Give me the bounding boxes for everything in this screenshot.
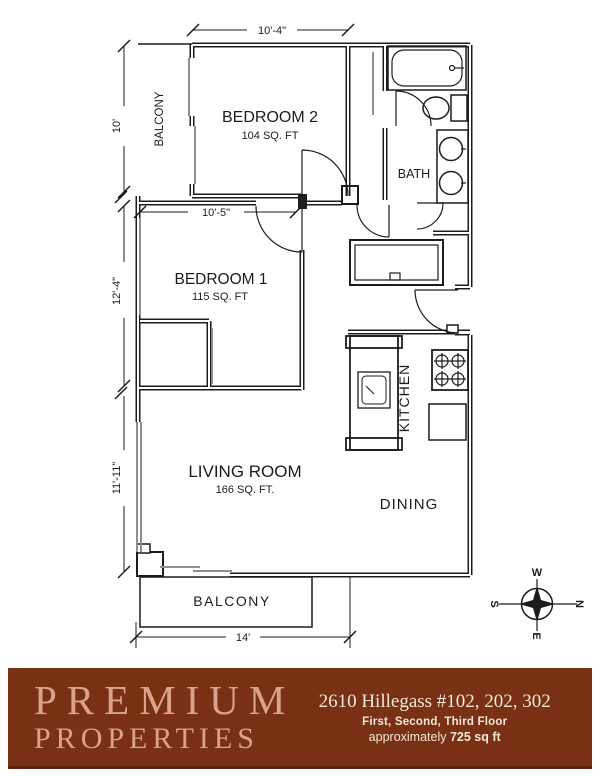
island-cap bbox=[346, 438, 402, 450]
bedroom2-area: 104 SQ. FT bbox=[242, 130, 299, 142]
bathtub bbox=[392, 50, 462, 86]
brand-logo: PREMIUM PROPERTIES bbox=[34, 680, 295, 754]
door-post bbox=[298, 194, 307, 209]
toilet-tank bbox=[451, 95, 467, 121]
listing-area: approximately 725 sq ft bbox=[295, 730, 574, 744]
living-room-label: LIVING ROOM bbox=[188, 462, 301, 481]
tub-faucet-icon bbox=[450, 66, 455, 71]
stove-burners bbox=[434, 353, 466, 387]
dim-bedroom2-width: 10'-4" bbox=[258, 25, 286, 37]
compass-top: W bbox=[532, 567, 543, 579]
brand-line2: PROPERTIES bbox=[34, 724, 295, 754]
dim-bedroom1-height: 12'-4" bbox=[111, 277, 123, 305]
listing-info: 2610 Hillegass #102, 202, 302 First, Sec… bbox=[295, 691, 574, 744]
compass-rose: W N S E bbox=[488, 567, 585, 640]
listing-area-prefix: approximately bbox=[369, 730, 450, 744]
bedroom2-label: BEDROOM 2 bbox=[222, 109, 318, 126]
toilet bbox=[423, 97, 449, 119]
compass-right: N bbox=[573, 600, 585, 608]
kitchen-island bbox=[350, 336, 398, 450]
dim-bottom-width: 14' bbox=[236, 632, 250, 644]
floor-plan-drawing: BEDROOM 2 104 SQ. FT BEDROOM 1 115 SQ. F… bbox=[0, 0, 600, 662]
sink-faucet-icon bbox=[366, 386, 374, 394]
living-room-window bbox=[137, 422, 141, 552]
kitchen-counter bbox=[429, 404, 466, 440]
listing-area-value: 725 sq ft bbox=[450, 730, 501, 744]
hall-door bbox=[357, 205, 389, 237]
dim-living-height: 11'-11" bbox=[111, 462, 123, 495]
dim-balcony-height: 10' bbox=[111, 119, 123, 133]
compass-bottom: E bbox=[530, 632, 542, 639]
sink bbox=[440, 172, 463, 195]
kitchen-label: KITCHEN bbox=[396, 364, 412, 432]
bath-side-door bbox=[396, 91, 431, 126]
bottom-slider-window bbox=[160, 567, 232, 571]
listing-floors: First, Second, Third Floor bbox=[295, 716, 574, 728]
island-cap bbox=[346, 336, 402, 348]
room-labels: BEDROOM 2 104 SQ. FT BEDROOM 1 115 SQ. F… bbox=[154, 91, 438, 609]
dim-bedroom1-width: 10'-5" bbox=[202, 207, 230, 219]
dining-label: DINING bbox=[380, 496, 439, 513]
compass-star-icon bbox=[519, 586, 555, 622]
compass-left: S bbox=[488, 600, 500, 607]
bedroom1-area: 115 SQ. FT bbox=[192, 291, 248, 303]
balcony-top-label: BALCONY bbox=[154, 91, 166, 146]
footer-banner: PREMIUM PROPERTIES 2610 Hillegass #102, … bbox=[8, 668, 592, 769]
sink bbox=[440, 138, 463, 161]
balcony-bottom-label: BALCONY bbox=[193, 593, 270, 609]
bath-label: BATH bbox=[398, 167, 430, 181]
hall-closet bbox=[350, 240, 443, 285]
brand-line1: PREMIUM bbox=[34, 680, 295, 721]
living-room-area: 166 SQ. FT. bbox=[216, 484, 275, 496]
kitchen-sink-basin bbox=[362, 376, 386, 404]
stove bbox=[432, 350, 468, 390]
vanity bbox=[437, 130, 468, 203]
floor-plan: BEDROOM 2 104 SQ. FT BEDROOM 1 115 SQ. F… bbox=[0, 0, 600, 662]
bath-door bbox=[417, 203, 443, 229]
bedroom1-label: BEDROOM 1 bbox=[174, 271, 267, 288]
listing-address: 2610 Hillegass #102, 202, 302 bbox=[295, 691, 574, 713]
